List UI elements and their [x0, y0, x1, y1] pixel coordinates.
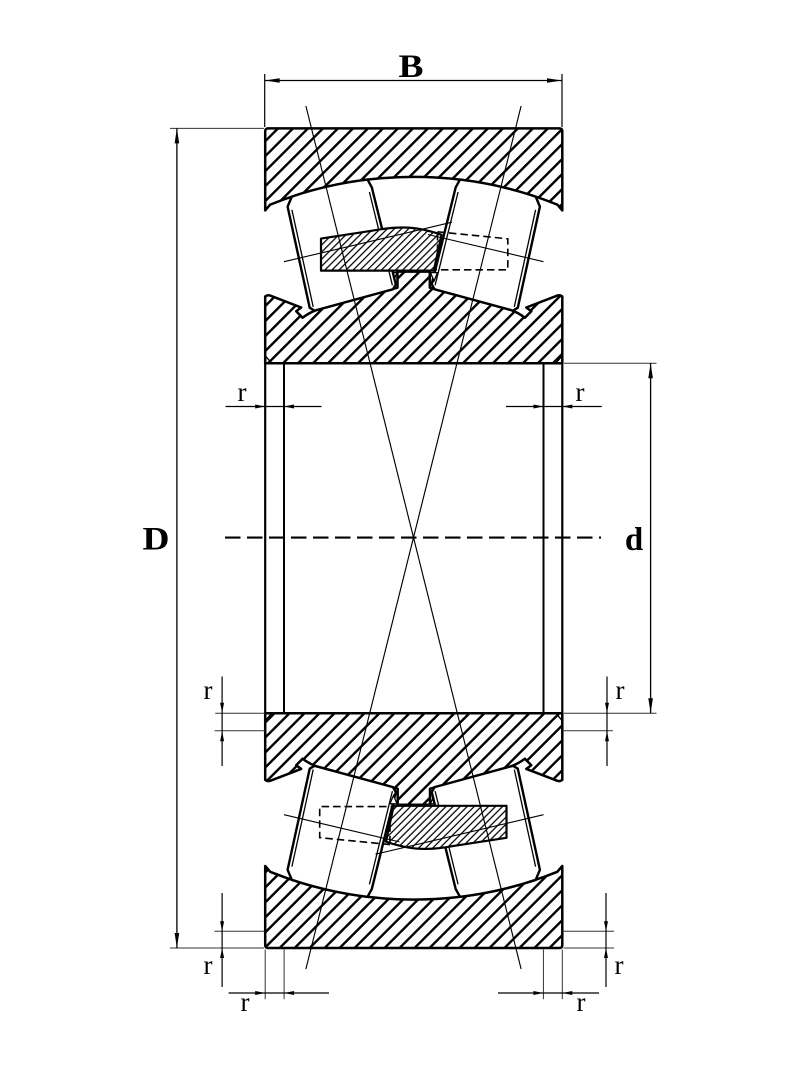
svg-text:r: r — [615, 950, 624, 980]
svg-text:r: r — [204, 950, 213, 980]
svg-text:B: B — [399, 49, 424, 85]
svg-text:d: d — [625, 522, 643, 558]
svg-text:r: r — [616, 675, 625, 705]
svg-text:D: D — [143, 521, 170, 557]
svg-text:r: r — [241, 987, 250, 1017]
svg-text:r: r — [238, 377, 247, 407]
svg-text:r: r — [204, 675, 213, 705]
svg-text:r: r — [577, 987, 586, 1017]
svg-text:r: r — [576, 377, 585, 407]
